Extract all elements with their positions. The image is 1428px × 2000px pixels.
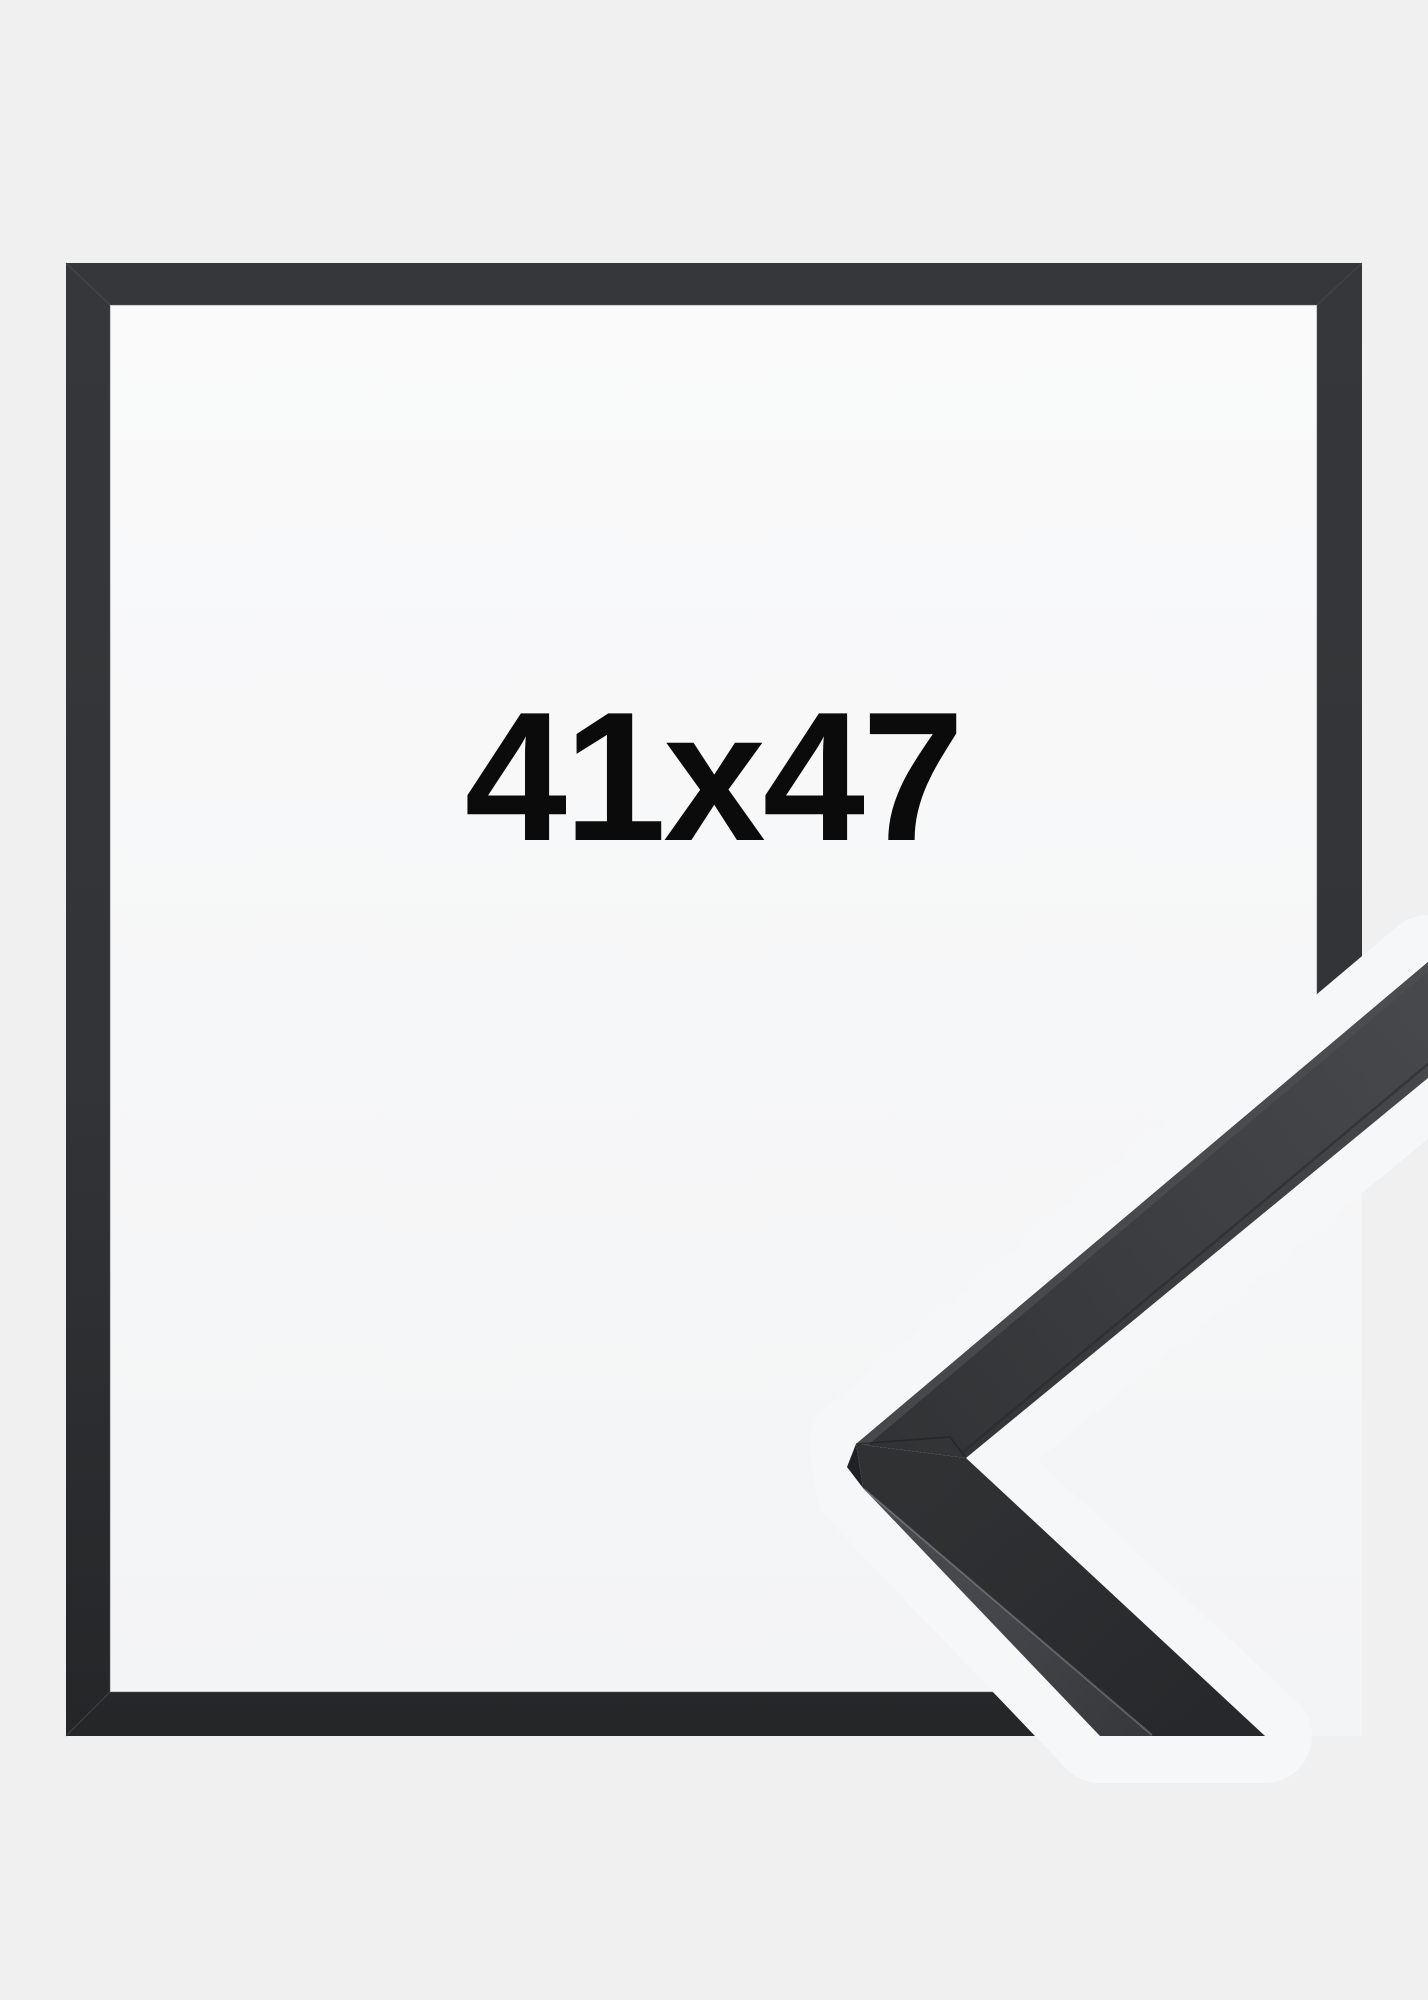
frame-paper-inside xyxy=(66,263,1362,1736)
frame-size-label: 41x47 xyxy=(465,673,962,879)
frame-product-photo: 41x47 xyxy=(0,0,1428,2000)
product-image: 41x47 xyxy=(0,0,1428,2000)
